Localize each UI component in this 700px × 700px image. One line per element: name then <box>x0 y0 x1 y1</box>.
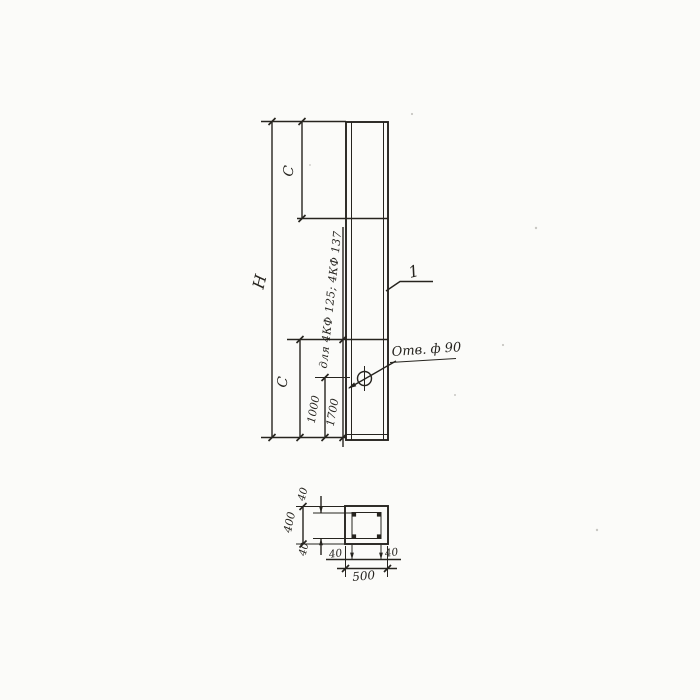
dim-label-cover-right: 40 <box>383 546 399 560</box>
dim-label-400: 400 <box>281 511 298 535</box>
column-outline <box>346 122 388 440</box>
technical-drawing-sheet: Н С С 1000 1700 для 4КФ 125; 4КФ 137 <box>0 0 700 700</box>
scan-speck <box>454 394 456 396</box>
rebar-dot-icon <box>353 513 357 517</box>
dim-arrowhead-icon <box>379 553 383 560</box>
dim-arrowhead-icon <box>319 506 323 513</box>
hole-callout: Отв. ф 90 <box>348 340 462 388</box>
rebar-dot-icon <box>353 534 357 538</box>
dim-label-C-upper: С <box>280 164 298 178</box>
scan-speck <box>411 113 413 115</box>
dim-label-C-lower: С <box>274 375 292 389</box>
alt-position-note: для 4КФ 125; 4КФ 137 <box>317 230 344 369</box>
scan-speck <box>535 227 537 229</box>
dim-label-cover-top: 40 <box>295 486 310 503</box>
leader-arrowhead-icon <box>348 382 356 388</box>
drawing-canvas: Н С С 1000 1700 для 4КФ 125; 4КФ 137 <box>0 0 700 700</box>
position-mark: 1 <box>386 261 433 291</box>
reinforcement-cage <box>352 513 381 539</box>
dim-label-1000: 1000 <box>305 394 323 424</box>
rebar-dot-icon <box>377 534 381 538</box>
position-mark-leader <box>386 282 433 292</box>
dim-label-cover-left: 40 <box>327 547 343 561</box>
scan-speck <box>596 529 598 531</box>
scan-speck <box>502 344 504 346</box>
rebar-dot-icon <box>377 513 381 517</box>
dim-label-H: Н <box>249 272 271 292</box>
dim-label-500: 500 <box>352 568 376 584</box>
hole-leader-line <box>349 361 396 388</box>
dim-label-1700: 1700 <box>324 397 342 427</box>
dim-arrowhead-icon <box>350 553 354 560</box>
hole-note-text: Отв. ф 90 <box>391 340 462 360</box>
elevation-view: Н С С 1000 1700 для 4КФ 125; 4КФ 137 <box>249 118 462 447</box>
section-view: 400 40 40 40 40 500 <box>281 486 401 584</box>
position-mark-number: 1 <box>406 261 420 282</box>
scan-speck <box>309 164 311 166</box>
dim-arrowhead-icon <box>319 539 323 546</box>
